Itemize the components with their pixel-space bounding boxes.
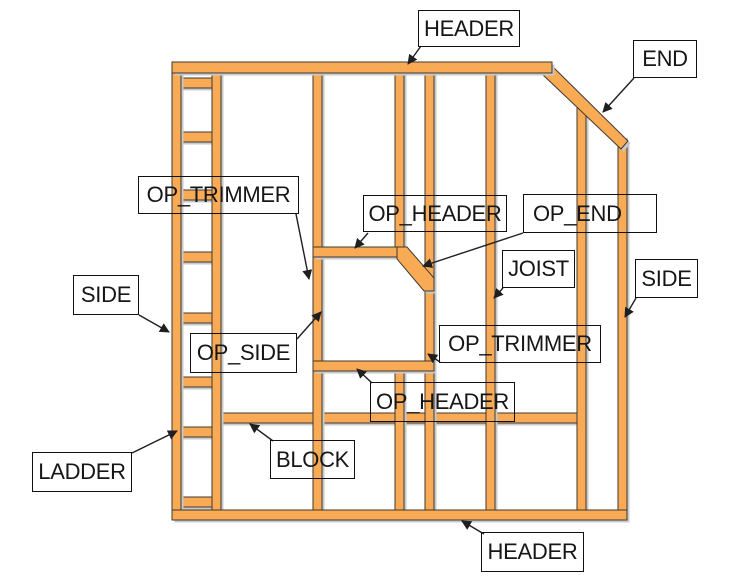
ladder-rail-right [212,70,221,512]
callout-op-header-bottom: OP_HEADER [370,382,515,422]
callout-block: BLOCK [270,440,355,479]
arrow-end [603,78,634,112]
arrow-header-top [408,46,421,64]
callout-end: END [633,40,697,78]
framing-diagram: HEADER END OP_TRIMMER OP_HEADER OP_END J… [0,0,743,585]
joist-mid [486,73,495,512]
callout-op-trimmer-right: OP_TRIMMER [439,325,601,363]
arrow-op-trimmer-left [296,214,309,279]
callout-op-header-top: OP_HEADER [363,195,507,232]
arrow-block [250,424,273,441]
joist-right [577,101,586,512]
op-header-top-beam [313,247,398,257]
callout-header-bottom: HEADER [481,532,584,572]
callout-joist: JOIST [502,250,575,288]
callout-header-top: HEADER [418,10,520,47]
header-bottom-beam [172,510,627,520]
op-header-bottom-beam [313,361,434,371]
callout-op-side: OP_SIDE [190,333,297,373]
side-beam-left [172,70,181,512]
callout-side-right: SIDE [635,259,698,298]
arrow-ladder [132,431,177,453]
callout-op-trimmer-left: OP_TRIMMER [138,176,299,214]
callout-side-left: SIDE [73,275,139,315]
arrow-op-header-top [355,233,368,248]
callout-ladder: LADDER [32,452,132,492]
callout-op-end: OP_END [523,194,657,233]
arrow-side-left [139,315,169,332]
header-top-beam [172,62,552,73]
